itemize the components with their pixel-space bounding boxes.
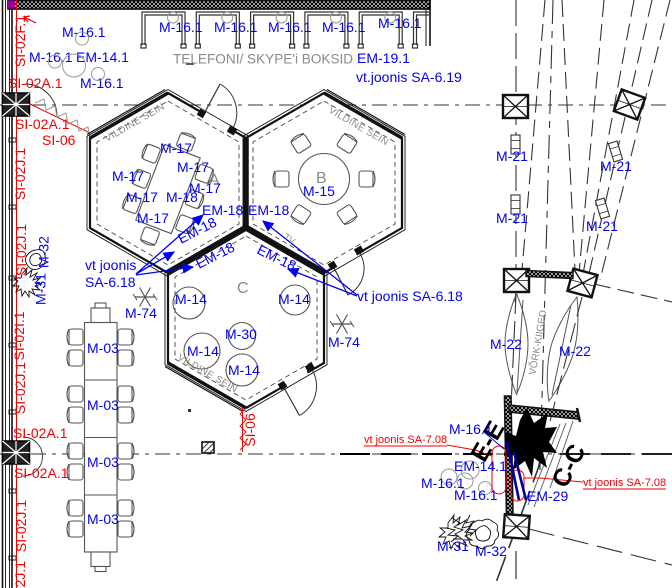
svg-text:SI-02I.1: SI-02I.1 [11, 311, 27, 360]
svg-text:M-03: M-03 [87, 340, 119, 356]
svg-text:M-32: M-32 [475, 543, 507, 559]
svg-text:M-31: M-31 [437, 538, 469, 554]
svg-text:M-16.1: M-16.1 [322, 19, 366, 35]
svg-text:M-74: M-74 [328, 334, 360, 350]
svg-text:M-14: M-14 [228, 362, 260, 378]
svg-text:vt joonis SA-7.08: vt joonis SA-7.08 [364, 434, 447, 446]
svg-text:M-03: M-03 [87, 397, 119, 413]
svg-text:M-74: M-74 [125, 305, 157, 321]
svg-text:M-31: M-31 [33, 273, 49, 305]
svg-text:M-32: M-32 [36, 236, 52, 268]
svg-text:M-03: M-03 [87, 454, 119, 470]
svg-text:EM-18: EM-18 [248, 202, 289, 218]
svg-text:M-17: M-17 [112, 168, 144, 184]
svg-text:M-15: M-15 [303, 183, 335, 199]
svg-text:M-14: M-14 [187, 343, 219, 359]
svg-text:SA-6.18: SA-6.18 [85, 274, 136, 290]
svg-text:M-16.1: M-16.1 [214, 19, 258, 35]
svg-text:vt joonis SA-6.18: vt joonis SA-6.18 [357, 288, 463, 304]
svg-text:M-14: M-14 [175, 291, 207, 307]
svg-text:M-22: M-22 [559, 343, 591, 359]
svg-text:M-21: M-21 [496, 210, 528, 226]
svg-text:M-21: M-21 [496, 148, 528, 164]
svg-text:M-18: M-18 [166, 189, 198, 205]
svg-text:M-16.1: M-16.1 [449, 421, 493, 437]
svg-text:vt.joonis SA-6.19: vt.joonis SA-6.19 [356, 69, 462, 85]
svg-text:vt joonis SA-7.08: vt joonis SA-7.08 [583, 477, 666, 489]
svg-text:SI-02A.1: SI-02A.1 [14, 465, 69, 481]
svg-text:M-30: M-30 [225, 326, 257, 342]
svg-text:M-03: M-03 [87, 511, 119, 527]
svg-text:EM-19.1: EM-19.1 [357, 50, 410, 66]
svg-text:EM-29: EM-29 [527, 488, 568, 504]
svg-text:SI-02J.1: SI-02J.1 [13, 224, 29, 276]
svg-text:SI-02J.1: SI-02J.1 [12, 362, 28, 414]
svg-text:M-16.1: M-16.1 [80, 75, 124, 91]
svg-text:SI-06: SI-06 [42, 132, 76, 148]
svg-text:EM-14.1: EM-14.1 [454, 458, 507, 474]
svg-text:SI-02J.1: SI-02J.1 [12, 561, 28, 588]
svg-text:SI-02A.1: SI-02A.1 [13, 425, 68, 441]
svg-text:M-14: M-14 [278, 291, 310, 307]
svg-text:M-16.1: M-16.1 [159, 19, 203, 35]
svg-text:M-16.1: M-16.1 [378, 15, 422, 31]
svg-text:M-17: M-17 [126, 189, 158, 205]
svg-text:SI-02F.1: SI-02F.1 [12, 15, 28, 67]
svg-text:C: C [237, 280, 249, 297]
svg-text:EM-14.1: EM-14.1 [76, 49, 129, 65]
svg-text:M-22: M-22 [490, 336, 522, 352]
svg-text:M-16.1: M-16.1 [268, 19, 312, 35]
svg-text:TELEFONI/ SKYPE'i BOKSID: TELEFONI/ SKYPE'i BOKSID [173, 52, 353, 67]
svg-text:vt joonis: vt joonis [85, 257, 136, 273]
svg-text:SI-06: SI-06 [242, 413, 258, 447]
svg-text:SI-02A.1: SI-02A.1 [15, 116, 70, 132]
svg-text:SI-02J.1: SI-02J.1 [13, 500, 29, 552]
svg-text:M-21: M-21 [600, 158, 632, 174]
svg-text:M-21: M-21 [586, 218, 618, 234]
svg-text:SI-02J.1: SI-02J.1 [12, 148, 28, 200]
svg-text:M-17: M-17 [177, 159, 209, 175]
svg-text:M-16.1: M-16.1 [454, 487, 498, 503]
svg-text:M-17: M-17 [160, 140, 192, 156]
svg-text:M-17: M-17 [137, 210, 169, 226]
svg-text:SI-02A.1: SI-02A.1 [8, 75, 63, 91]
